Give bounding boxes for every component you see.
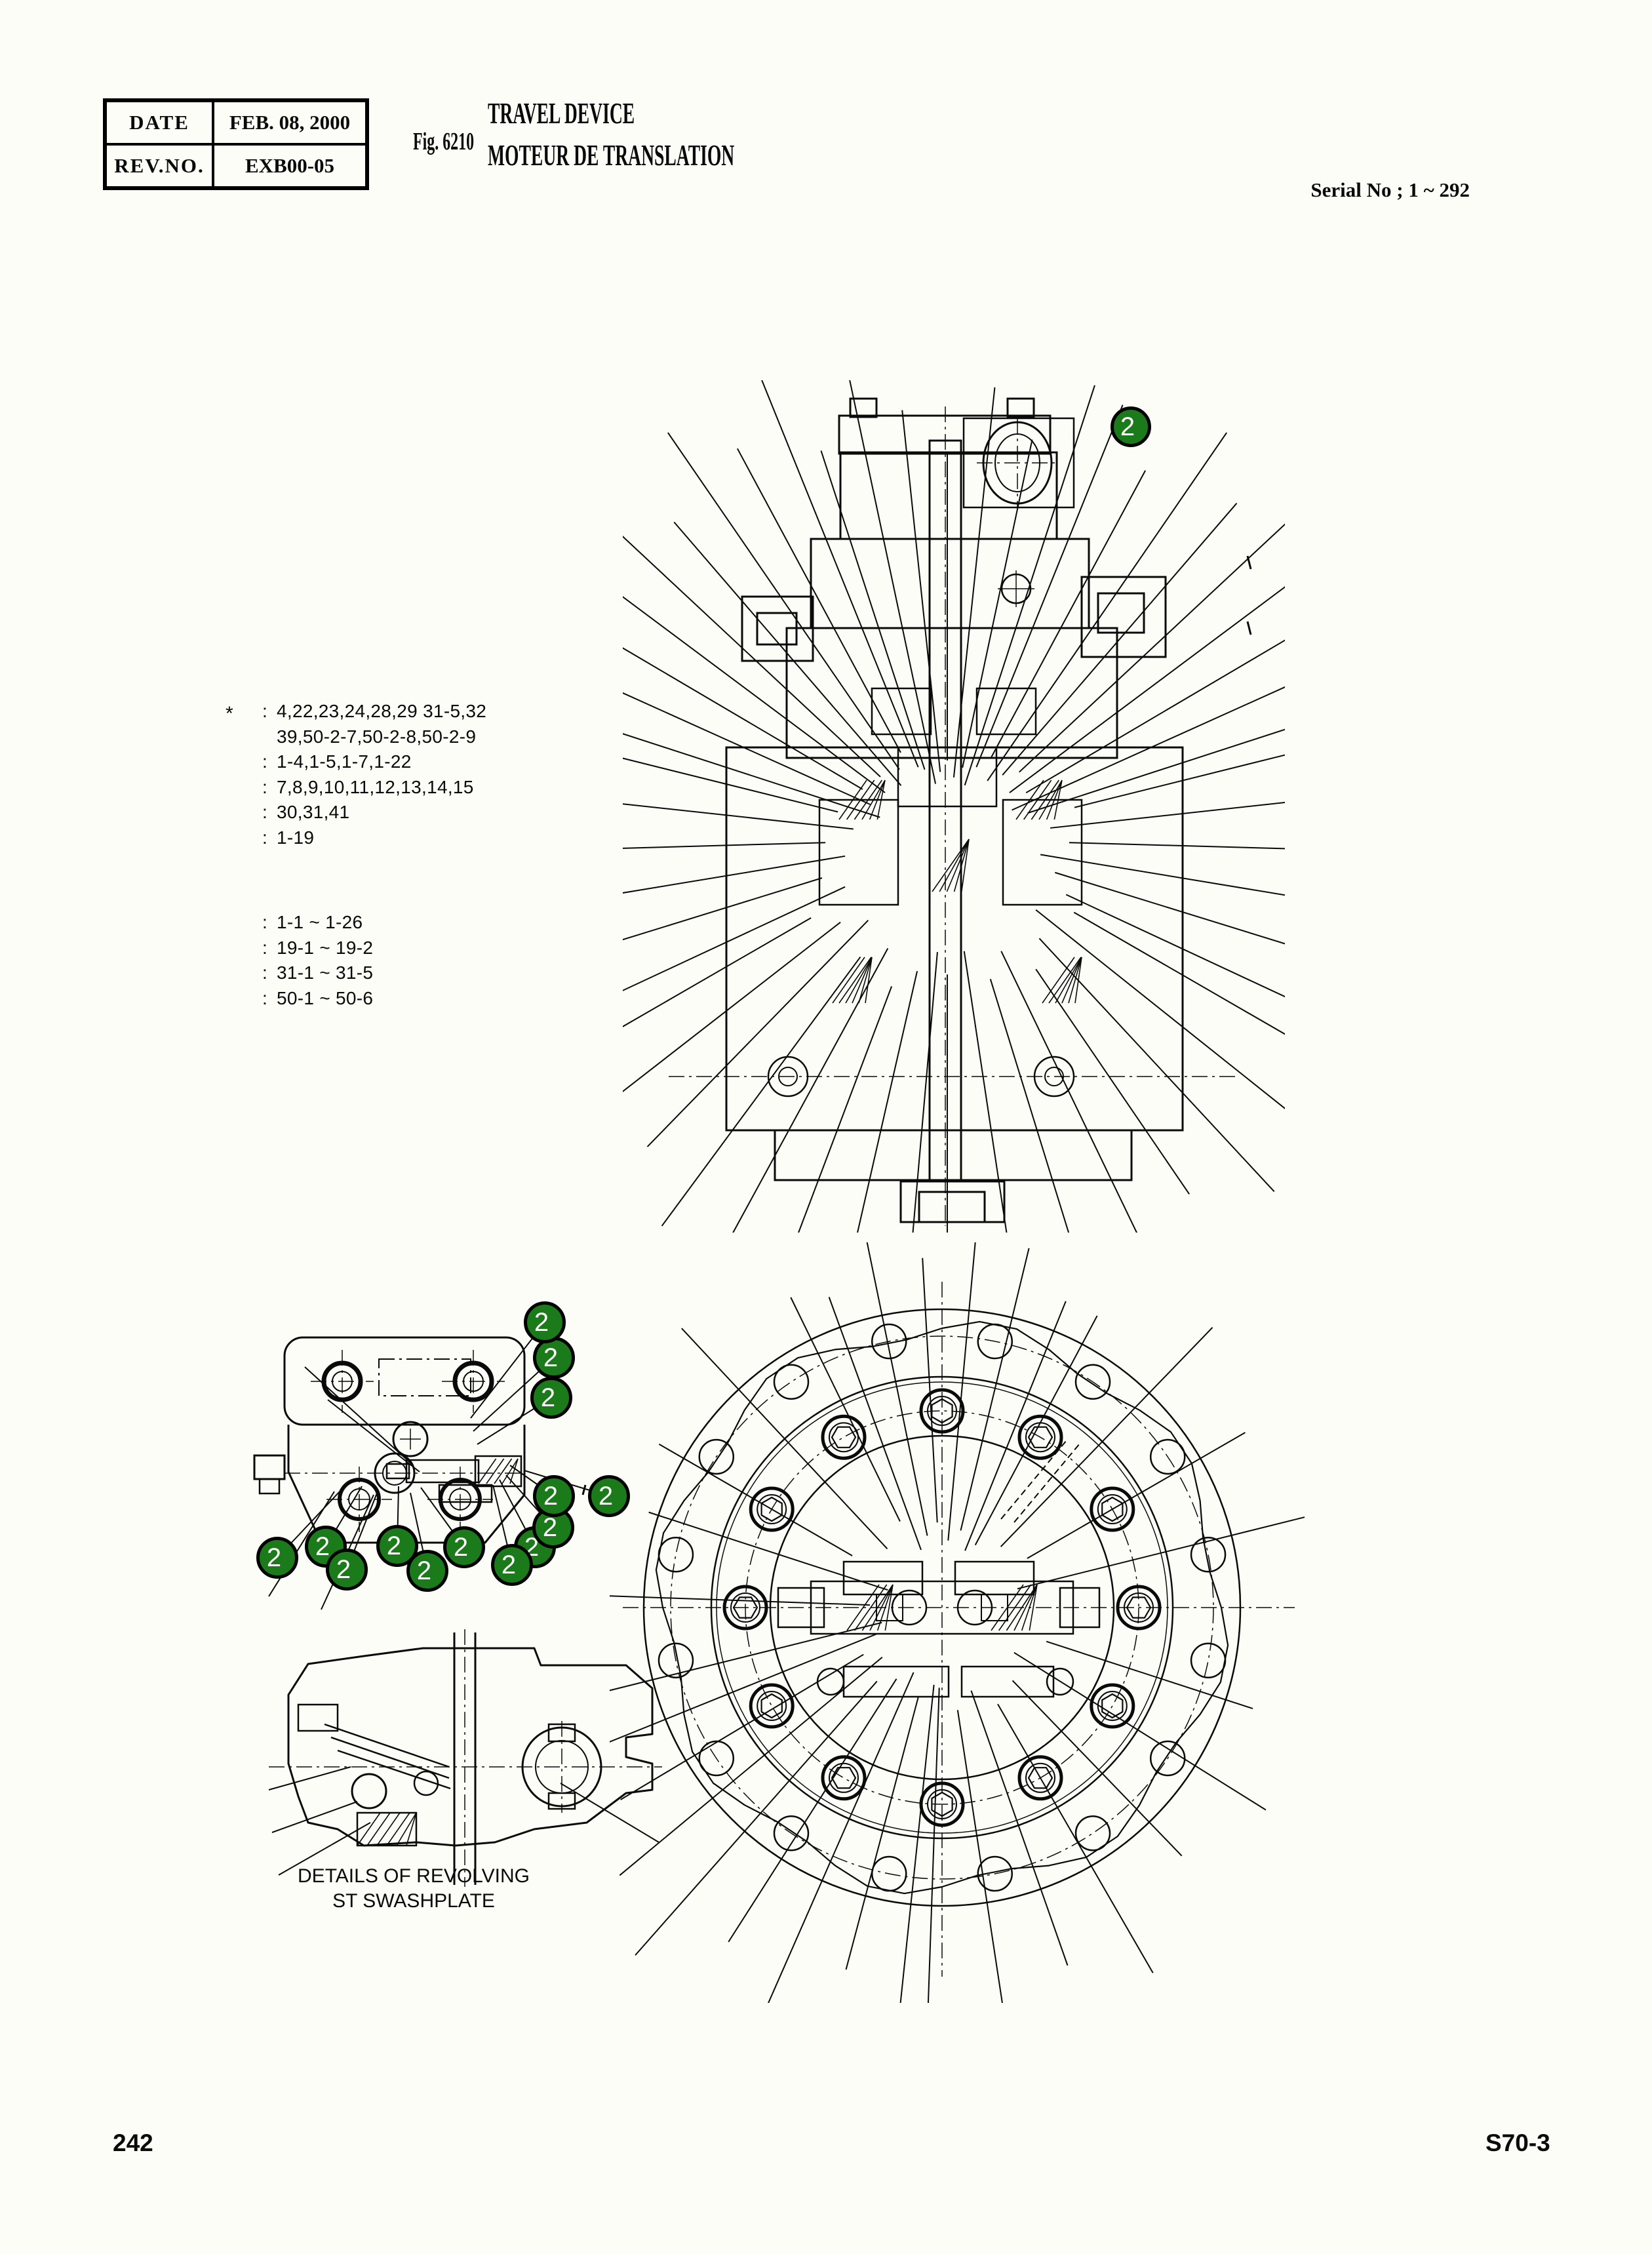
- callout-badge: 2: [406, 1550, 448, 1592]
- part-number-notes: :4,22,23,24,28,29 31-5,32 39,50-2-7,50-2…: [262, 699, 486, 851]
- callout-badge: 2: [256, 1537, 298, 1579]
- table-row: REV.NO. EXB00-05: [105, 144, 367, 188]
- asterisk-marker: *: [226, 703, 233, 725]
- figure-number: Fig. 6210: [413, 127, 474, 156]
- caption-line: DETAILS OF REVOLVING: [259, 1864, 568, 1889]
- note-line: :1-4,1-5,1-7,1-22: [262, 749, 486, 775]
- revision-table: DATE FEB. 08, 2000 REV.NO. EXB00-05: [103, 98, 369, 190]
- callout-badge: 2: [491, 1544, 533, 1586]
- callout-badge: 2: [530, 1377, 572, 1419]
- note-line: :50-1 ~ 50-6: [262, 986, 373, 1012]
- callout-badge: 2: [533, 1337, 575, 1379]
- note-line: :1-1 ~ 1-26: [262, 910, 373, 936]
- page-number: 242: [113, 2129, 153, 2157]
- callout-badge: 2: [588, 1475, 630, 1517]
- swashplate-detail-diagram: [259, 1626, 672, 1888]
- revno-value: EXB00-05: [213, 144, 367, 188]
- page-title-french: MOTEUR DE TRANSLATION: [488, 138, 734, 172]
- note-line: :4,22,23,24,28,29 31-5,32: [262, 699, 486, 724]
- section-code: S70-3: [1485, 2129, 1550, 2157]
- date-value: FEB. 08, 2000: [213, 100, 367, 144]
- part-range-notes: :1-1 ~ 1-26 :19-1 ~ 19-2 :31-1 ~ 31-5 :5…: [262, 910, 373, 1011]
- date-label: DATE: [105, 100, 213, 144]
- note-line: :1-19: [262, 825, 486, 851]
- note-line: :7,8,9,10,11,12,13,14,15: [262, 775, 486, 801]
- note-line: :31-1 ~ 31-5: [262, 960, 373, 986]
- catalog-page: DATE FEB. 08, 2000 REV.NO. EXB00-05 Fig.…: [0, 0, 1652, 2254]
- page-title: TRAVEL DEVICE: [488, 96, 635, 130]
- revno-label: REV.NO.: [105, 144, 213, 188]
- note-line: :30,31,41: [262, 800, 486, 825]
- callout-badge: 2: [533, 1475, 575, 1517]
- callout-badge: 2: [1111, 406, 1151, 447]
- note-line: 39,50-2-7,50-2-8,50-2-9: [262, 724, 486, 750]
- note-line: :19-1 ~ 19-2: [262, 936, 373, 961]
- table-row: DATE FEB. 08, 2000: [105, 100, 367, 144]
- travel-device-cross-section-diagram: [623, 380, 1285, 1233]
- serial-number-range: Serial No ; 1 ~ 292: [1239, 178, 1470, 202]
- callout-badge: 2: [524, 1301, 566, 1343]
- diagram-caption: DETAILS OF REVOLVING ST SWASHPLATE: [259, 1864, 568, 1914]
- callout-badge: 2: [326, 1549, 368, 1591]
- callout-badge: 2: [443, 1526, 485, 1568]
- caption-line: ST SWASHPLATE: [259, 1889, 568, 1914]
- motor-end-view-diagram: [610, 1242, 1305, 2003]
